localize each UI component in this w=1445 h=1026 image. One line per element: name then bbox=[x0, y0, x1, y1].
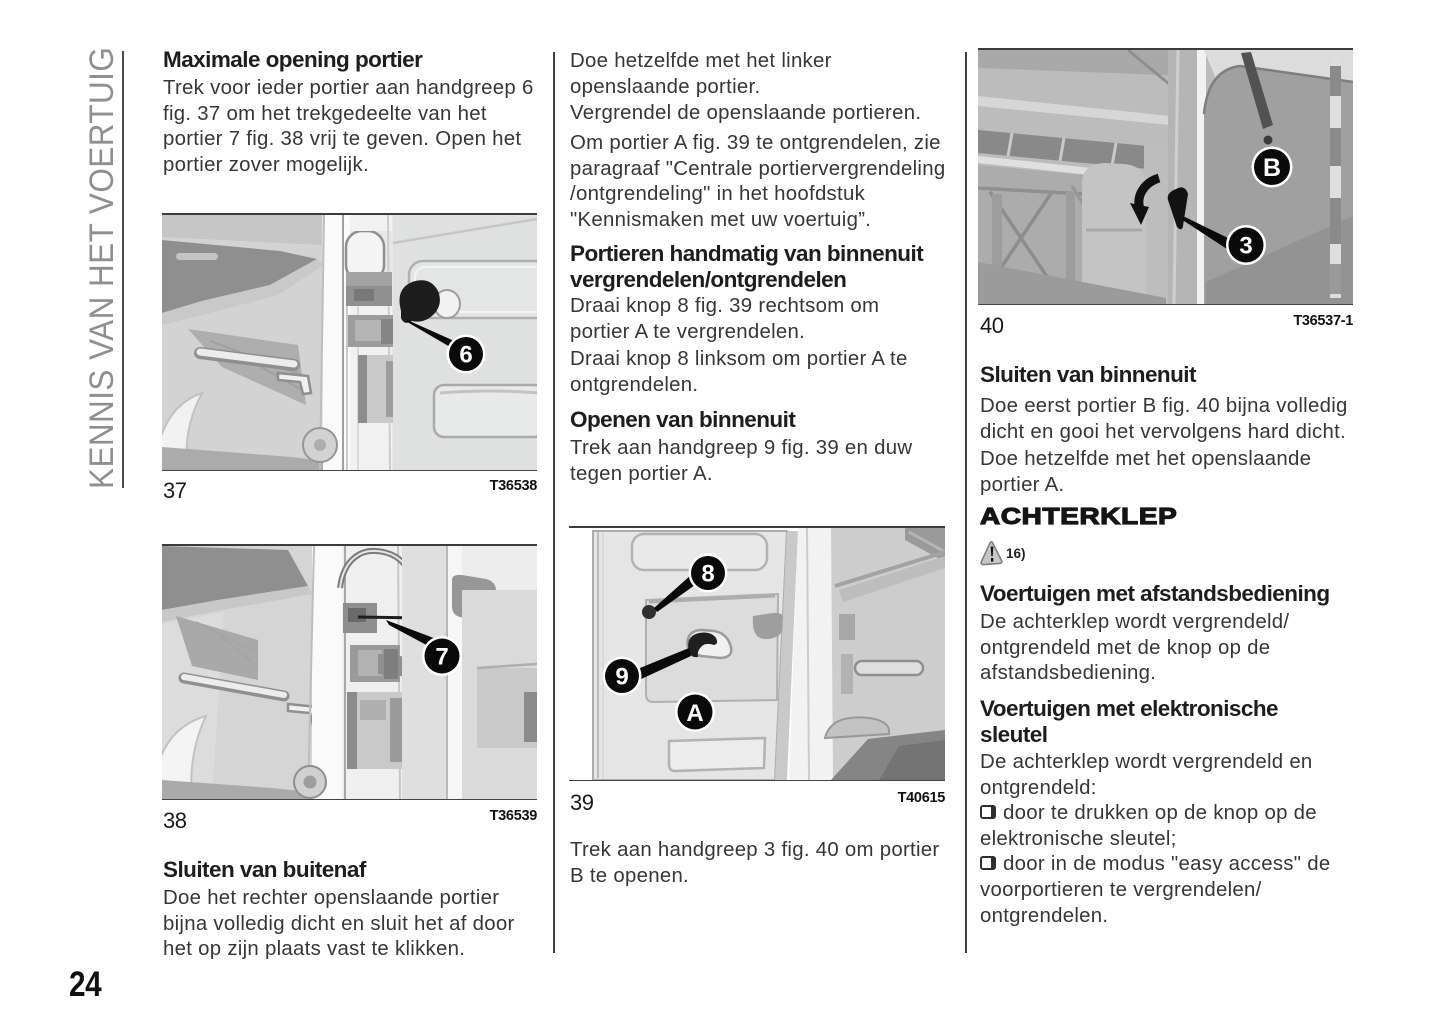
svg-text:3: 3 bbox=[1239, 233, 1252, 260]
svg-text:B: B bbox=[1263, 154, 1281, 182]
svg-text:7: 7 bbox=[435, 644, 448, 671]
svg-text:9: 9 bbox=[615, 664, 628, 691]
svg-text:6: 6 bbox=[459, 342, 472, 369]
svg-text:A: A bbox=[686, 700, 703, 727]
svg-text:8: 8 bbox=[701, 561, 714, 588]
